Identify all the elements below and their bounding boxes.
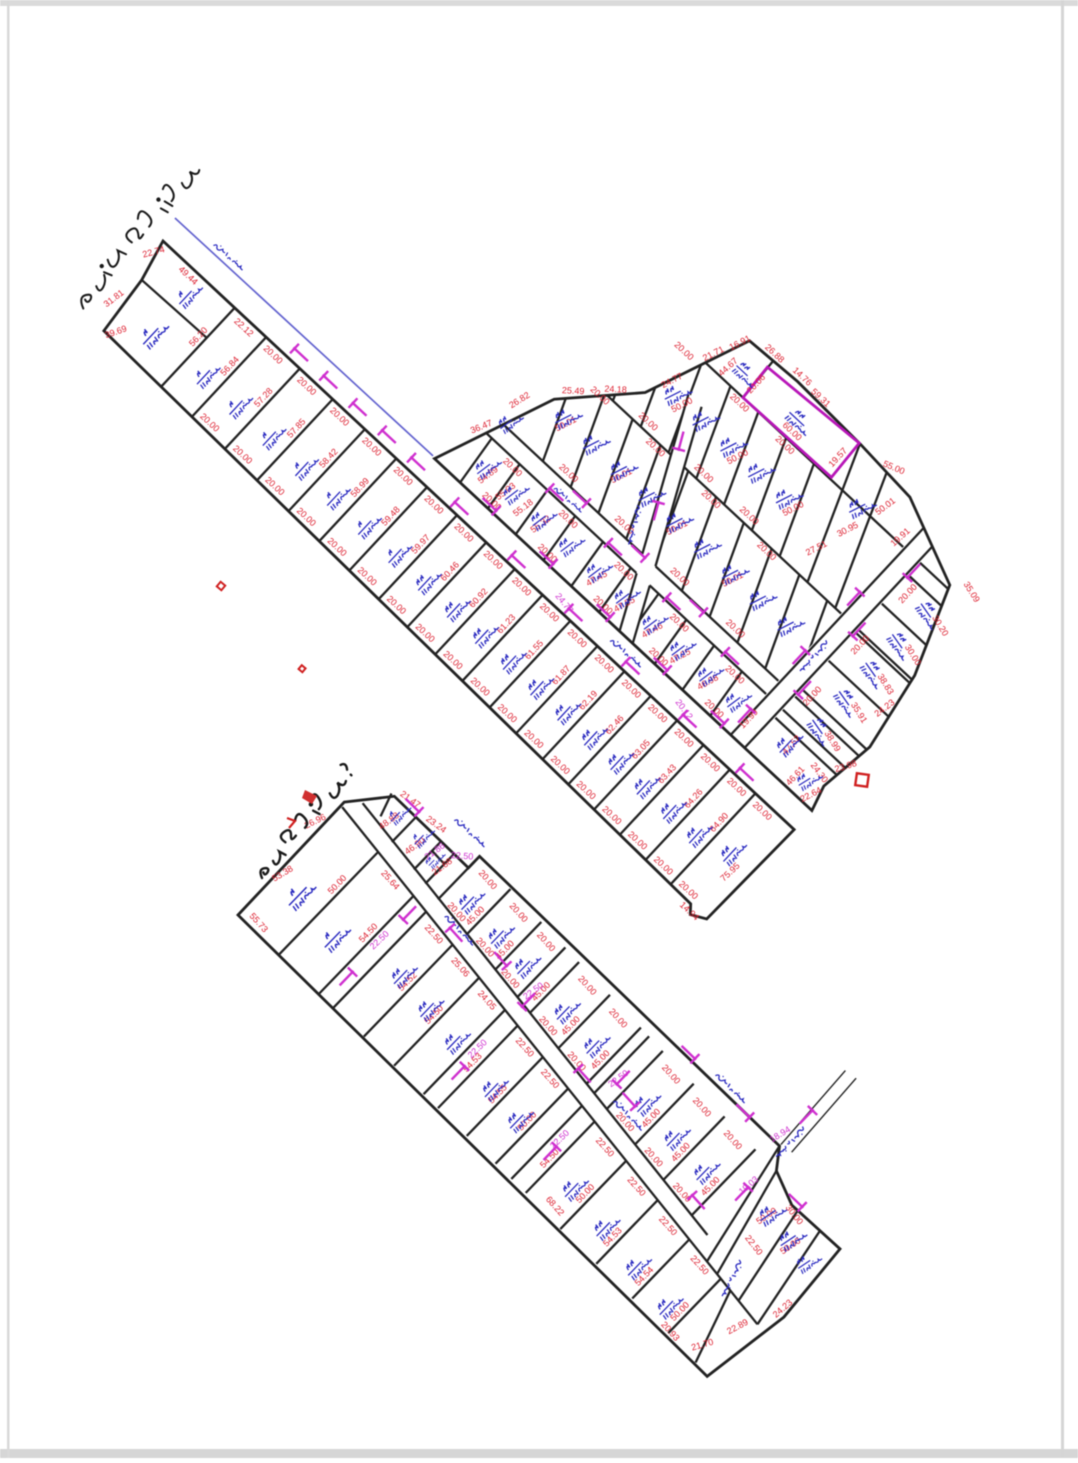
svg-text:24.18: 24.18 xyxy=(604,384,627,395)
svg-text:22.50: 22.50 xyxy=(451,850,474,862)
svg-text:25.49: 25.49 xyxy=(562,385,585,396)
